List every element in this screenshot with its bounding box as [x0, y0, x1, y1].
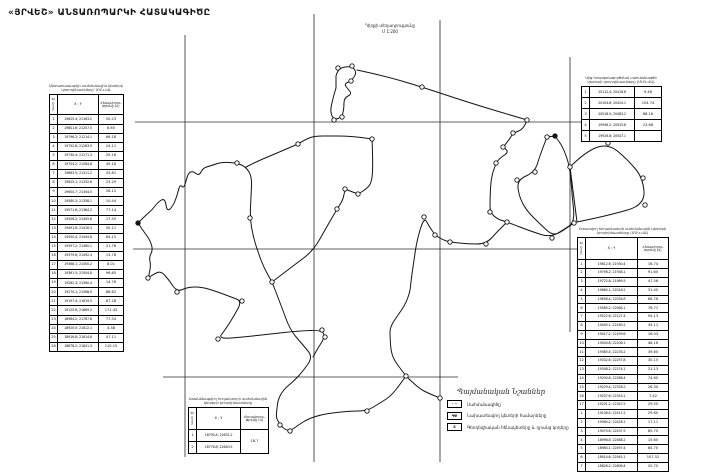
boundary-vertex — [572, 221, 576, 225]
point-coordinates: 19404.8; 22208.1 — [586, 339, 638, 348]
point-number: 19 — [50, 279, 58, 288]
point-number: 18 — [50, 270, 58, 279]
table-row: 219798.2; 21938.191.60 — [578, 269, 669, 278]
boundary-path — [406, 376, 440, 398]
boundary-vertex — [365, 409, 369, 413]
boundary-line-symbol: ∙ − — [447, 400, 462, 408]
boundary-path — [518, 136, 574, 234]
table-row: 118790.4; 22631.218.7 — [189, 430, 269, 442]
segment-distance: 107.52 — [638, 454, 669, 463]
point-coordinates: 20112.4; 20418.6 — [590, 87, 635, 98]
point-coordinates: 19270.1; 21568.9 — [58, 288, 99, 297]
table-row: 2318984.2; 21767.877.54 — [50, 315, 124, 324]
segment-distance: 14.76 — [99, 279, 124, 288]
segment-distance: 88.62 — [99, 288, 124, 297]
boundary-path — [246, 144, 298, 167]
segment-distance: 77.14 — [99, 206, 124, 215]
table-row: 2119197.4; 21619.587.28 — [50, 297, 124, 306]
point-number: 4 — [578, 286, 586, 295]
point-coordinates: 19070.6; 22437.5 — [586, 427, 638, 436]
segment-distance: 96.65 — [99, 270, 124, 279]
table-row: 519658.4; 22034.888.76 — [578, 295, 669, 304]
left-coordinate-table: Անտառապարկի սահմանային կետերի կոորդինատն… — [49, 84, 123, 352]
point-number: 22 — [50, 306, 58, 315]
point-coordinates: 19580.3; 21358.1 — [58, 197, 99, 206]
point-coordinates: 19704.2; 21284.6 — [58, 160, 99, 169]
point-number: 5 — [50, 151, 58, 160]
table-row: 219084.2; 22428.117.11 — [578, 418, 669, 427]
boundary-vertex — [335, 207, 339, 211]
segment-distance: 13.78 — [99, 251, 124, 260]
segment-distance: 10.44 — [99, 197, 124, 206]
table-body: 120112.4; 20418.69.46220104.8; 20424.110… — [582, 87, 662, 142]
legend-label: Գեոդեզիական հենակետերը և դրանց կոդերը — [467, 425, 569, 430]
segment-distance: 87.28 — [99, 297, 124, 306]
point-number: 5 — [578, 445, 586, 454]
table-row: 1619379.6; 21492.413.78 — [50, 251, 124, 260]
segment-distance: 7.42 — [638, 392, 669, 401]
segment-distance: 84.70 — [638, 445, 669, 454]
table-row: 2418920.5; 21812.14.38 — [50, 324, 124, 333]
point-number: 25 — [50, 333, 58, 342]
table-caption: Օտարվող հողամասերի սահմանային կետերի կոո… — [577, 227, 668, 236]
point-number: 1 — [578, 260, 586, 269]
table-row: 319070.6; 22437.589.70 — [578, 427, 669, 436]
table-row: 1219332.6; 22257.830.15 — [578, 357, 669, 366]
table-row: 919417.2; 22199.616.03 — [578, 330, 669, 339]
segment-distance: 8.01 — [99, 260, 124, 269]
boundary-vertex — [340, 115, 344, 119]
point-coordinates: 19722.8; 21989.5 — [586, 278, 638, 287]
point-coordinates: 19522.6; 22127.4 — [586, 313, 638, 322]
legend-item: ԳՓ Նախատեսվող կետերի համարները — [447, 412, 587, 420]
table-row: 1919282.3; 21560.414.76 — [50, 279, 124, 288]
point-number: 20 — [50, 288, 58, 297]
caption-line: կետերի կոորդինատները (ՄՍԿ-ՎԱ) — [581, 80, 661, 84]
segment-distance: 50.23 — [99, 115, 124, 124]
segment-distance: 30.15 — [638, 357, 669, 366]
point-coordinates: 18984.1; 22497.4 — [586, 445, 638, 454]
table-caption: Անտառապարկի սահմանային կետերի կոորդինատն… — [49, 84, 123, 93]
boundary-vertex — [320, 328, 324, 332]
boundary-vertex — [336, 66, 340, 70]
table-row: 718826.2; 22606.420.70 — [578, 462, 669, 471]
point-coordinates: 19684.1; 22016.2 — [586, 286, 638, 295]
boundary-vertex — [448, 240, 452, 244]
point-number: 13 — [578, 366, 586, 375]
col-header-xy: X ; Y — [197, 408, 241, 430]
point-number: 1 — [189, 430, 197, 442]
point-coordinates: 19397.2; 21480.1 — [58, 242, 99, 251]
point-coordinates: 19946.2; 20533.8 — [590, 120, 635, 131]
point-coordinates: 19125.6; 21669.2 — [58, 306, 99, 315]
caption-line: կետերի կոորդինատները — [188, 401, 268, 405]
boundary-vertex — [146, 276, 150, 280]
boundary-vertex — [356, 192, 360, 196]
point-number: 6 — [578, 304, 586, 313]
point-coordinates: 19361.5; 21504.8 — [58, 270, 99, 279]
col-header-index: Կետի № — [189, 408, 197, 430]
col-header-dist: Հեռավորու- թյունը (մ) — [241, 408, 269, 430]
point-number: 15 — [50, 242, 58, 251]
plan-sheet: «ՅՐՎԵՇ» ԱՆՏԱՌՈՊԱՐԿԻ ՀԱՏԱԿԱԳԻԾԸ Դիրքի տեղ… — [0, 0, 703, 473]
boundary-vertex — [420, 85, 424, 89]
legend-item: Տ Գեոդեզիական հենակետերը և դրանց կոդերը — [447, 423, 587, 431]
boundary-vertex — [216, 337, 220, 341]
boundary-vertex — [533, 170, 537, 174]
table-row: 320018.5; 20483.288.16 — [582, 109, 662, 120]
point-number: 12 — [50, 215, 58, 224]
boundary-vertex — [349, 79, 353, 83]
boundary-vertex — [350, 64, 354, 68]
point-coordinates: 19365.4; 22235.2 — [586, 348, 638, 357]
point-coordinates: 18984.2; 21767.8 — [58, 315, 99, 324]
point-coordinates: 19379.6; 21492.4 — [58, 251, 99, 260]
point-number: 4 — [50, 142, 58, 151]
boundary-path — [490, 120, 574, 236]
table-body: 119812.6; 21930.416.74219798.2; 21938.19… — [578, 260, 669, 471]
point-coordinates: 19450.4; 21444.6 — [58, 233, 99, 242]
table-row: 1319308.2; 22274.121.13 — [578, 366, 669, 375]
point-coordinates: 19332.6; 22257.8 — [586, 357, 638, 366]
boundary-vertex — [343, 187, 347, 191]
point-coordinates: 19625.1; 21332.8 — [58, 179, 99, 188]
segment-distance: 16.74 — [638, 260, 669, 269]
point-number: 2 — [50, 124, 58, 133]
point-number: 12 — [578, 357, 586, 366]
table-row: 119812.6; 21930.416.74 — [578, 260, 669, 269]
table-row: 1119365.4; 22235.239.60 — [578, 348, 669, 357]
boundary-vertex — [494, 161, 498, 165]
point-number: 6 — [578, 454, 586, 463]
table-row: 518984.1; 22497.484.70 — [578, 445, 669, 454]
point-coordinates: 19730.4; 21271.3 — [58, 151, 99, 160]
table-caption: Առանձնացվող հողակտորի սահմանային կետերի … — [188, 397, 268, 406]
segment-distance: 110.15 — [99, 342, 124, 351]
point-number: 8 — [50, 179, 58, 188]
boundary-path — [298, 136, 372, 144]
table-caption: Կից հողօգտագործման սահմանագծի կետերի կոո… — [581, 76, 661, 85]
point-coordinates: 19197.4; 21619.5 — [58, 297, 99, 306]
segment-distance: 104.74 — [635, 98, 662, 109]
table-row: 418996.8; 22488.215.60 — [578, 436, 669, 445]
point-number: 13 — [50, 224, 58, 233]
point-number: 3 — [50, 133, 58, 142]
segment-distance: 43.81 — [99, 170, 124, 179]
boundary-vertex — [438, 396, 442, 400]
segment-distance: 50.11 — [99, 224, 124, 233]
point-coordinates: 19229.4; 22328.2 — [586, 383, 638, 392]
table-body: 119825.4; 21163.250.23219801.6; 21207.58… — [50, 115, 124, 351]
col-header-dist: Հեռավորու- թյունը (մ) — [99, 95, 124, 115]
segment-distance: 4.38 — [99, 324, 124, 333]
segment-distance: 16.03 — [638, 330, 669, 339]
point-number: 8 — [578, 322, 586, 331]
table-row: 1519397.2; 21480.121.76 — [50, 242, 124, 251]
location-note: Դիրքի տեղադրությունը Մ 1:200 — [330, 23, 450, 35]
segment-distance: 24-11 — [99, 142, 124, 151]
segment-distance: 20.70 — [638, 462, 669, 471]
col-header-index: Կետի № — [50, 95, 58, 115]
boundary-vertex — [641, 176, 645, 180]
boundary-vertex — [505, 220, 509, 224]
segment-distance: 26.30 — [638, 383, 669, 392]
boundary-vertex — [553, 134, 557, 138]
point-number: 7 — [50, 170, 58, 179]
boundary-vertex — [525, 118, 529, 122]
table-row: 419946.2; 20533.823.68 — [582, 120, 662, 131]
point-coordinates: 19752.8; 21263.9 — [58, 142, 99, 151]
segment-distance: 66.18 — [99, 133, 124, 142]
legend-label: Նախատեսվող կետերի համարները — [467, 413, 546, 418]
point-coordinates: 19290.8; 22286.4 — [586, 374, 638, 383]
point-coordinates: 18878.2; 21841.3 — [58, 342, 99, 351]
table-row: 1819361.5; 21504.896.65 — [50, 270, 124, 279]
point-number: 1 — [582, 87, 590, 98]
segment-distance: 39.60 — [638, 348, 669, 357]
point-coordinates: 19308.2; 22274.1 — [586, 366, 638, 375]
segment-distance: 88.76 — [638, 295, 669, 304]
segment-distance: 23.29 — [99, 179, 124, 188]
table-row: 719522.6; 22127.494.13 — [578, 313, 669, 322]
point-number: 2 — [582, 98, 590, 109]
segment-distance: 21.13 — [638, 366, 669, 375]
point-number: 21 — [50, 297, 58, 306]
point-coordinates: 19201.2; 22347.5 — [586, 401, 638, 410]
point-number: 5 — [578, 295, 586, 304]
boundary-vertex — [511, 131, 515, 135]
segment-distance: 64.15 — [99, 233, 124, 242]
col-header-xy: X ; Y — [586, 238, 638, 260]
table-row: 619704.2; 21284.649.18 — [50, 160, 124, 169]
boundary-path — [331, 67, 356, 119]
geodetic-point-symbol: Տ — [447, 423, 462, 431]
table-row: 119825.4; 21163.250.23 — [50, 115, 124, 124]
point-number: 14 — [50, 233, 58, 242]
point-coordinates: 19798.2; 21938.1 — [586, 269, 638, 278]
right-coordinate-table: Օտարվող հողամասերի սահմանային կետերի կոո… — [577, 227, 668, 472]
segment-distance — [635, 131, 662, 142]
segment-distance: 88.16 — [635, 109, 662, 120]
boundary-vertex — [278, 423, 282, 427]
table-row: 419752.8; 21263.924-11 — [50, 142, 124, 151]
segment-distance: 47.56 — [638, 278, 669, 287]
segment-distance: 29.50 — [638, 401, 669, 410]
segment-distance: 8.65 — [99, 124, 124, 133]
segment-distance: 9.46 — [635, 87, 662, 98]
point-coordinates: 19207.6; 22343.1 — [586, 392, 638, 401]
segment-distance: 171.42 — [99, 306, 124, 315]
top-right-coordinate-table: Կից հողօգտագործման սահմանագծի կետերի կոո… — [581, 76, 661, 142]
table-row: 619585.2; 22084.176.71 — [578, 304, 669, 313]
point-coordinates: 19571.6; 21364.2 — [58, 206, 99, 215]
legend-label: Սահմանագիծը — [467, 402, 501, 407]
table-row: 618914.6; 22545.1107.52 — [578, 454, 669, 463]
table-row: 1519229.4; 22328.226.30 — [578, 383, 669, 392]
point-number: 1 — [50, 115, 58, 124]
segment-distance: 15.60 — [638, 436, 669, 445]
boundary-vertex — [296, 142, 300, 146]
segment-distance: 77.54 — [99, 315, 124, 324]
point-coordinates: 19658.4; 22034.8 — [586, 295, 638, 304]
table-row: 319796.2; 21214.166.18 — [50, 133, 124, 142]
boundary-vertex — [175, 290, 179, 294]
point-number: 9 — [50, 188, 58, 197]
boundary-vertex — [643, 203, 647, 207]
boundary-vertex — [404, 374, 408, 378]
segment-distance: 76.71 — [638, 304, 669, 313]
legend: Պայմանական Նշաններ ∙ − Սահմանագիծը ԳՓ Նա… — [447, 388, 587, 435]
table-row: 819625.1; 21332.823.29 — [50, 179, 124, 188]
point-coordinates: 19812.6; 21930.4 — [586, 260, 638, 269]
point-number: 9 — [578, 330, 586, 339]
table-row: 719663.5; 21311.243.81 — [50, 170, 124, 179]
point-coordinates: 19825.4; 21163.2 — [58, 115, 99, 124]
point-number: 26 — [50, 342, 58, 351]
table-row: 319722.8; 21989.547.56 — [578, 278, 669, 287]
table-row: 1719201.2; 22347.529.50 — [578, 401, 669, 410]
point-coordinates: 18776.8; 22640.5 — [197, 442, 241, 454]
col-header-xy: X ; Y — [58, 95, 99, 115]
caption-line: կոորդինատները՝ ՄՍԿ-ՎԱ — [49, 88, 123, 92]
table-row: 1419290.8; 22286.474.60 — [578, 374, 669, 383]
boundary-vertex — [515, 178, 519, 182]
table-row: 1419450.4; 21444.664.15 — [50, 233, 124, 242]
segment-distance: 31.40 — [638, 286, 669, 295]
point-coordinates: 19796.2; 21214.1 — [58, 133, 99, 142]
boundary-vertex — [235, 161, 239, 165]
note-scale: Մ 1:200 — [330, 29, 450, 35]
segment-distance: 21.76 — [99, 242, 124, 251]
segment-distance: 17.11 — [638, 418, 669, 427]
segment-distance: 17.55 — [99, 215, 124, 224]
point-coordinates: 19926.8; 20547.1 — [590, 131, 635, 142]
segment-distance: 29.60 — [638, 410, 669, 419]
point-coordinates: 19585.2; 22084.1 — [586, 304, 638, 313]
point-number: 5 — [582, 131, 590, 142]
point-coordinates: 19108.4; 22411.2 — [586, 410, 638, 419]
table-row: 2618878.2; 21841.3110.15 — [50, 342, 124, 351]
point-number: 10 — [578, 339, 586, 348]
boundary-vertex — [370, 137, 374, 141]
table-row: 1219506.2; 21405.817.55 — [50, 215, 124, 224]
point-coordinates: 18916.8; 21814.6 — [58, 333, 99, 342]
point-coordinates: 19368.1; 21500.2 — [58, 260, 99, 269]
point-coordinates: 19282.3; 21560.4 — [58, 279, 99, 288]
point-number: 11 — [50, 206, 58, 215]
table-row: 819445.1; 22180.234.11 — [578, 322, 669, 331]
segment-distance: 89.70 — [638, 427, 669, 436]
table-row: 219801.6; 21207.58.65 — [50, 124, 124, 133]
table-row: 220104.8; 20424.1104.74 — [582, 98, 662, 109]
boundary-vertex — [248, 216, 252, 220]
table-row: 419684.1; 22016.231.40 — [578, 286, 669, 295]
col-header-index: Կետի № — [578, 238, 586, 260]
boundary-vertex — [568, 165, 572, 169]
point-number: 23 — [50, 315, 58, 324]
boundary-vertex — [332, 118, 336, 122]
point-number: 16 — [50, 251, 58, 260]
point-number: 4 — [582, 120, 590, 131]
boundary-vertex — [484, 242, 488, 246]
point-coordinates: 19084.2; 22428.1 — [586, 418, 638, 427]
point-coordinates: 19417.2; 22199.6 — [586, 330, 638, 339]
point-coordinates: 19491.8; 21416.3 — [58, 224, 99, 233]
table-row: 2518916.8; 21814.647.11 — [50, 333, 124, 342]
point-number: 2 — [578, 269, 586, 278]
point-coordinates: 18996.8; 22488.2 — [586, 436, 638, 445]
point-number: 7 — [578, 313, 586, 322]
point-number: 4 — [578, 436, 586, 445]
parcel-number-symbol: ԳՓ — [447, 412, 462, 420]
boundary-vertex — [488, 210, 492, 214]
point-coordinates: 18790.4; 22631.2 — [197, 430, 241, 442]
boundary-path — [570, 146, 644, 222]
boundary-path — [357, 70, 527, 120]
table-row: 1619207.6; 22343.17.42 — [578, 392, 669, 401]
table-row: 1319491.8; 21416.350.11 — [50, 224, 124, 233]
point-number: 11 — [578, 348, 586, 357]
table-row: 919604.7; 21344.528.12 — [50, 188, 124, 197]
boundary-vertex — [270, 280, 274, 284]
segment-distance: 47.11 — [99, 333, 124, 342]
point-coordinates: 19663.5; 21311.2 — [58, 170, 99, 179]
point-coordinates: 18920.5; 21812.1 — [58, 324, 99, 333]
boundary-vertex — [240, 299, 244, 303]
table-row: 1719368.1; 21500.28.01 — [50, 260, 124, 269]
table-row: 2219125.6; 21669.2171.42 — [50, 306, 124, 315]
table-body: 118790.4; 22631.218.7218776.8; 22640.5 — [189, 430, 269, 454]
boundary-vertex — [288, 429, 292, 433]
boundary-vertex — [323, 335, 327, 339]
boundary-vertex — [545, 135, 549, 139]
segment-distance: 18.7 — [241, 430, 269, 454]
col-header-dist: Հեռավորու- թյունը (մ) — [638, 238, 669, 260]
page-title: «ՅՐՎԵՇ» ԱՆՏԱՌՈՊԱՐԿԻ ՀԱՏԱԿԱԳԻԾԸ — [8, 8, 211, 18]
table-row: 519926.8; 20547.1 — [582, 131, 662, 142]
point-number: 3 — [582, 109, 590, 120]
point-coordinates: 19445.1; 22180.2 — [586, 322, 638, 331]
boundary-vertex — [433, 233, 437, 237]
legend-item: ∙ − Սահմանագիծը — [447, 400, 587, 408]
segment-distance: 28.12 — [99, 188, 124, 197]
point-number: 24 — [50, 324, 58, 333]
legend-title: Պայմանական Նշաններ — [457, 388, 587, 396]
bottom-coordinate-table: Առանձնացվող հողակտորի սահմանային կետերի … — [188, 397, 268, 454]
segment-distance: 74.60 — [638, 374, 669, 383]
segment-distance: 23.68 — [635, 120, 662, 131]
table-row: 2019270.1; 21568.988.62 — [50, 288, 124, 297]
segment-distance: 34.11 — [638, 322, 669, 331]
point-number: 10 — [50, 197, 58, 206]
segment-distance: 94.13 — [638, 313, 669, 322]
point-coordinates: 18826.2; 22606.4 — [586, 462, 638, 471]
segment-distance: 91.60 — [638, 269, 669, 278]
segment-distance: 29.16 — [99, 151, 124, 160]
point-number: 7 — [578, 462, 586, 471]
boundary-vertex — [422, 215, 426, 219]
point-number: 2 — [189, 442, 197, 454]
table-row: 519730.4; 21271.329.16 — [50, 151, 124, 160]
boundary-path — [138, 162, 272, 282]
table-row: 119108.4; 22411.229.60 — [578, 410, 669, 419]
point-coordinates: 19506.2; 21405.8 — [58, 215, 99, 224]
point-coordinates: 19604.7; 21344.5 — [58, 188, 99, 197]
point-coordinates: 19801.6; 21207.5 — [58, 124, 99, 133]
table-row: 1019580.3; 21358.110.44 — [50, 197, 124, 206]
point-coordinates: 20104.8; 20424.1 — [590, 98, 635, 109]
point-number: 14 — [578, 374, 586, 383]
